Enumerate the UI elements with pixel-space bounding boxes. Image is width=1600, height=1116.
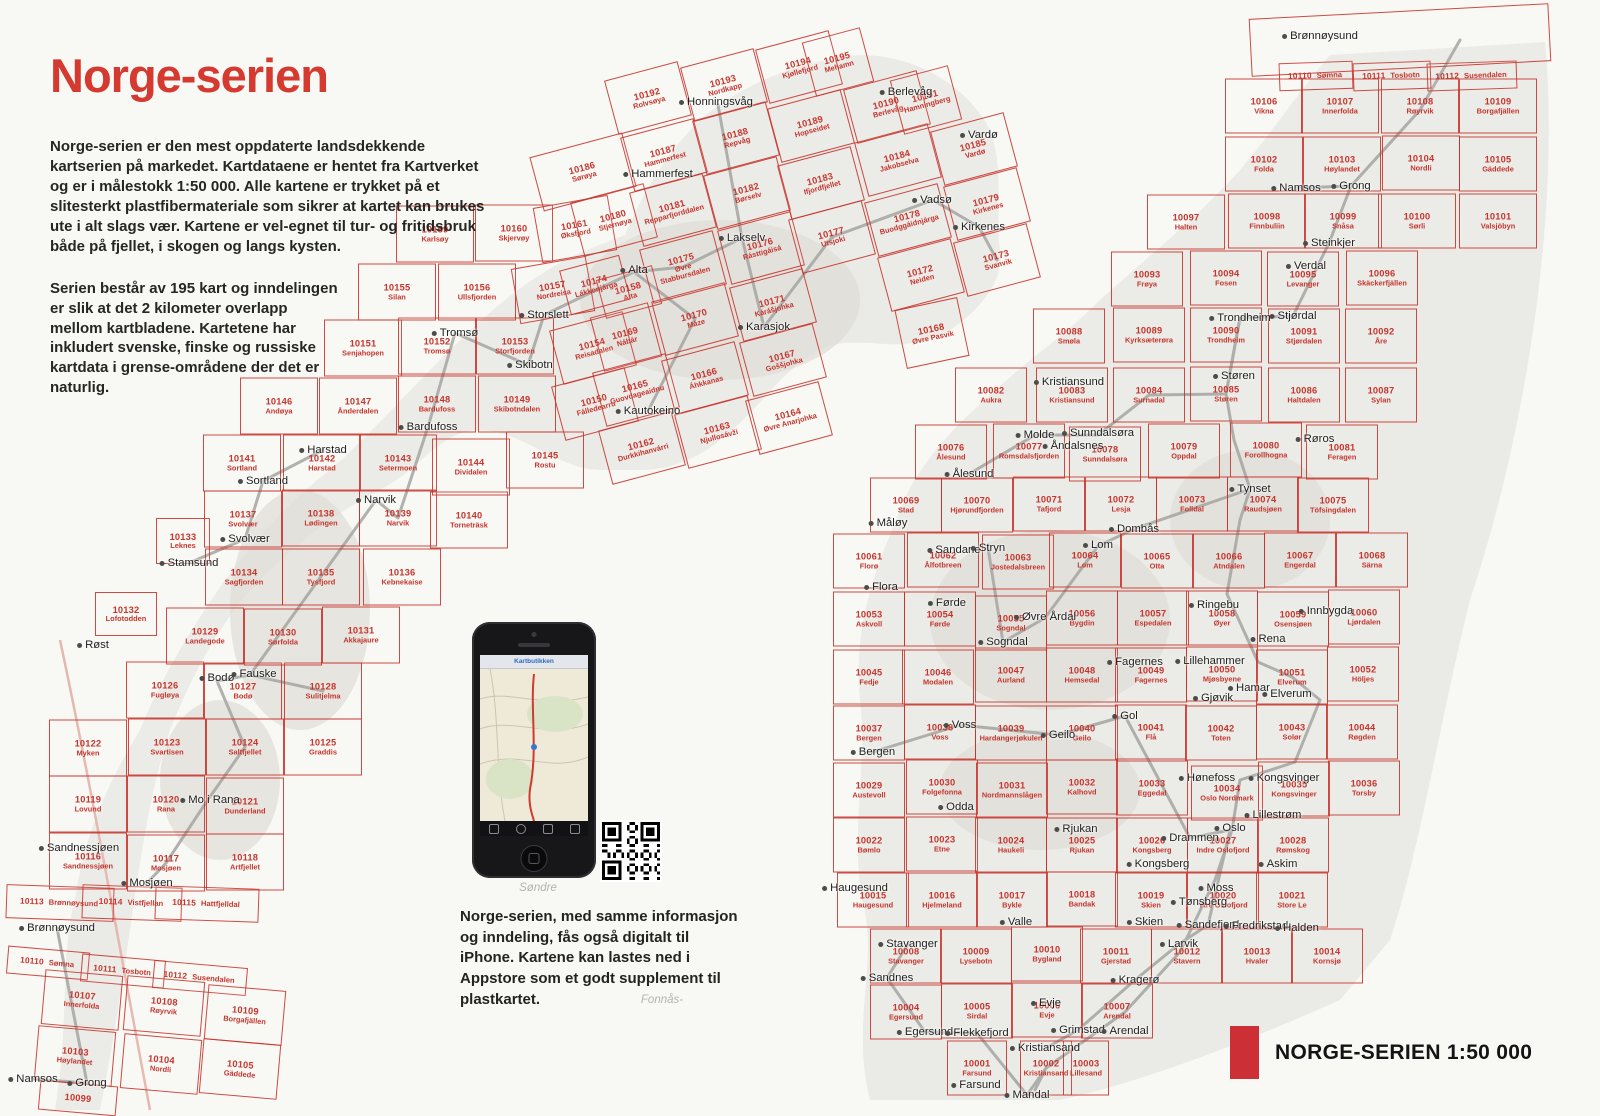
city-name: Kristiansand xyxy=(1018,1042,1080,1054)
city-label-gj-vik: Gjøvik xyxy=(1193,692,1233,704)
sheet-number: 10065 xyxy=(1144,552,1171,562)
city-dot-icon xyxy=(1262,692,1267,697)
sheet-number: 10004 xyxy=(893,1003,920,1013)
phone-screen: Kartbutikken xyxy=(480,655,588,836)
qr-module xyxy=(643,844,646,847)
city-name: Kongsberg xyxy=(1135,858,1190,870)
qr-module xyxy=(613,855,616,858)
city-label-stamsund: Stamsund xyxy=(160,557,219,569)
intro-section: Norge-serien Norge-serien er den mest op… xyxy=(50,48,488,420)
city-label-skibotn: Skibotn xyxy=(507,359,553,371)
city-label-larvik: Larvik xyxy=(1160,938,1198,950)
city-label-kirkenes: Kirkenes xyxy=(953,221,1005,233)
city-label-namsos: Namsos xyxy=(1271,182,1320,194)
map-sheet-10143: 10143Setermoen xyxy=(359,435,437,492)
city-name: Åndalsnes xyxy=(1051,440,1104,452)
qr-module xyxy=(632,844,635,847)
city-dot-icon xyxy=(679,100,684,105)
sheet-name: Surnadal xyxy=(1131,396,1167,404)
sheet-name: Gäddede xyxy=(1480,165,1516,173)
city-label-innbygda: Innbygda xyxy=(1299,605,1353,617)
city-label-sandnes: Sandnes xyxy=(861,972,914,984)
city-dot-icon xyxy=(945,472,950,477)
sheet-name: Borgafjällen xyxy=(221,1014,268,1026)
sheet-name: Voss xyxy=(929,733,950,741)
sheet-name: Hattfjelldal xyxy=(199,899,242,909)
sheet-name: Rømskog xyxy=(1274,846,1312,854)
sheet-number: 10069 xyxy=(893,496,920,506)
city-label-lom: Lom xyxy=(1083,539,1113,551)
qr-module xyxy=(643,863,646,866)
map-sheet-10080: 10080Forollhogna xyxy=(1230,423,1302,478)
sheet-name: Levanger xyxy=(1285,280,1322,288)
qr-module xyxy=(619,844,622,847)
sheet-name: Snåsa xyxy=(1330,222,1356,230)
qr-module xyxy=(646,872,649,875)
city-dot-icon xyxy=(8,1077,13,1082)
sheet-name: Rostu xyxy=(533,461,558,469)
qr-module xyxy=(630,872,633,875)
city-dot-icon xyxy=(1229,487,1234,492)
qr-module xyxy=(602,850,605,853)
page-title: Norge-serien xyxy=(50,48,488,103)
sheet-number: 10037 xyxy=(856,724,883,734)
city-dot-icon xyxy=(19,926,24,931)
city-name: Geilo xyxy=(1049,729,1075,741)
sheet-name: Ålesund xyxy=(934,453,967,461)
sheet-name: Leknes xyxy=(168,542,197,550)
sheet-name: Borgafjällen xyxy=(1475,107,1522,115)
city-name: Støren xyxy=(1221,370,1255,382)
city-dot-icon xyxy=(971,546,976,551)
city-dot-icon xyxy=(507,363,512,368)
city-dot-icon xyxy=(399,425,404,430)
sheet-name: Mosjøen xyxy=(149,864,183,872)
map-sheet-10062: 10062Ålfotbreen xyxy=(907,533,979,588)
qr-module xyxy=(641,852,644,855)
sheet-name: Indre Oslofjord xyxy=(1195,846,1252,854)
sheet-name: Aurland xyxy=(995,676,1027,684)
sheet-name: Torneträsk xyxy=(448,521,490,529)
sheet-name: Modalen xyxy=(921,678,955,686)
sheet-number: 10052 xyxy=(1350,665,1377,675)
sheet-number: 10139 xyxy=(385,509,412,519)
sheet-name: Finnbuliin xyxy=(1247,222,1286,230)
map-sheet-10042: 10042Toten xyxy=(1185,706,1257,761)
sheet-name: Støren xyxy=(1212,395,1239,403)
sheet-name: Bykle xyxy=(1000,901,1024,909)
sheet-name: Myken xyxy=(74,749,101,757)
sheet-name: Atndalen xyxy=(1211,562,1247,570)
sheet-name: Stad xyxy=(896,506,916,514)
city-name: Dombås xyxy=(1117,523,1159,535)
sheet-number: 10101 xyxy=(1485,212,1512,222)
city-name: Sandnes xyxy=(869,972,914,984)
qr-module xyxy=(641,866,644,869)
sheet-number: 10075 xyxy=(1320,496,1347,506)
sheet-name: Fosen xyxy=(1213,279,1239,287)
city-name: Farsund xyxy=(959,1079,1000,1091)
qr-module xyxy=(635,869,638,872)
iphone-note: Norge-serien, med samme informasjon og i… xyxy=(460,907,740,1010)
city-name: Grong xyxy=(1339,180,1370,192)
map-sheet-10086: 10086Haltdalen xyxy=(1268,368,1340,423)
sheet-number: 10130 xyxy=(270,628,297,638)
city-label-t-nsberg: Tønsberg xyxy=(1171,896,1227,908)
city-label-bardufoss: Bardufoss xyxy=(399,421,458,433)
city-dot-icon xyxy=(620,268,625,273)
city-dot-icon xyxy=(1286,264,1291,269)
sheet-name: Sortland xyxy=(225,464,259,472)
city-name: Hønefoss xyxy=(1187,772,1235,784)
sheet-number: 10112 xyxy=(1435,72,1459,82)
sheet-name: Skien xyxy=(1139,901,1163,909)
sheet-name: Stavern xyxy=(1171,957,1202,965)
sheet-number: 10003 xyxy=(1073,1059,1100,1069)
city-dot-icon xyxy=(1127,920,1132,925)
map-sheet-10009: 10009Lysebotn xyxy=(940,929,1012,984)
qr-module xyxy=(608,828,616,836)
sheet-name: Evje xyxy=(1037,1011,1056,1019)
city-name: Sunndalsøra xyxy=(1070,427,1134,439)
sheet-number: 10119 xyxy=(75,795,101,805)
qr-module xyxy=(627,852,630,855)
map-sheet-10010: 10010Bygland xyxy=(1011,927,1083,982)
city-dot-icon xyxy=(938,805,943,810)
map-sheet-10126: 10126Fugløya xyxy=(126,662,204,719)
city-name: Kragerø xyxy=(1119,974,1160,986)
sheet-name: Lysebotn xyxy=(958,957,995,965)
city-name: Halden xyxy=(1283,922,1319,934)
qr-module xyxy=(643,872,646,875)
qr-module xyxy=(635,841,638,844)
city-dot-icon xyxy=(1179,776,1184,781)
sheet-number: 10118 xyxy=(232,853,258,863)
qr-module xyxy=(632,836,635,839)
city-name: Evje xyxy=(1039,997,1061,1009)
sheet-number: 10108 xyxy=(1407,97,1434,107)
sheet-name: Jostedalsbreen xyxy=(989,563,1047,571)
map-sheet-10033: 10033Eggedal xyxy=(1116,761,1188,816)
sheet-number: 10029 xyxy=(856,781,883,791)
qr-module xyxy=(621,855,624,858)
map-sheet-10016: 10016Hjelmeland xyxy=(906,873,978,928)
city-label-gol: Gol xyxy=(1112,710,1138,722)
city-dot-icon xyxy=(199,676,204,681)
sheet-number: 10002 xyxy=(1033,1059,1060,1069)
city-label-st-ren: Støren xyxy=(1213,370,1255,382)
map-sheet-10123: 10123Svartisen xyxy=(128,719,206,776)
sheet-name: Halten xyxy=(1173,223,1200,231)
phone-search-icon xyxy=(543,824,553,834)
sheet-number: 10099 xyxy=(1330,212,1357,222)
map-sheet-10145: 10145Rostu xyxy=(506,432,584,489)
sheet-name: Sogndal xyxy=(994,624,1027,632)
map-sheet-10071: 10071Tafjord xyxy=(1013,477,1085,532)
sheet-number: 10128 xyxy=(310,682,337,692)
city-dot-icon xyxy=(869,521,874,526)
city-label-m-l-y: Måløy xyxy=(869,517,908,529)
sheet-number: 10141 xyxy=(229,454,256,464)
sheet-name: Innerfolda xyxy=(1320,107,1360,115)
city-dot-icon xyxy=(1282,34,1287,39)
city-name: Flora xyxy=(872,581,898,593)
qr-code xyxy=(600,820,662,882)
city-dot-icon xyxy=(1193,696,1198,701)
sheet-name: Svartisen xyxy=(148,748,185,756)
city-label-alta: Alta xyxy=(620,264,647,276)
sheet-number: 10122 xyxy=(75,739,102,749)
sheet-number: 10034 xyxy=(1214,784,1241,794)
sheet-number: 10047 xyxy=(998,666,1025,676)
sheet-number: 10149 xyxy=(504,395,531,405)
city-label-sandnessj-en: Sandnessjøen xyxy=(39,842,119,854)
sheet-name: Romsdalsfjorden xyxy=(997,452,1061,460)
city-name: Verdal xyxy=(1294,260,1326,272)
city-dot-icon xyxy=(1016,433,1021,438)
sheet-name: Osensjøen xyxy=(1272,620,1314,628)
sheet-name: Ljørdalen xyxy=(1345,618,1382,626)
city-label-grong: Grong xyxy=(67,1077,106,1089)
sheet-name: Töfsingdalen xyxy=(1308,506,1358,514)
city-name: Stavanger xyxy=(886,938,938,950)
sheet-number: 10123 xyxy=(154,738,181,748)
sheet-number: 10023 xyxy=(929,835,956,845)
qr-module xyxy=(630,836,633,839)
city-name: Ringebu xyxy=(1197,599,1239,611)
city-label-flora: Flora xyxy=(864,581,898,593)
city-label-sogndal: Sogndal xyxy=(978,636,1027,648)
qr-module xyxy=(646,828,654,836)
city-dot-icon xyxy=(1224,924,1229,929)
city-dot-icon xyxy=(1175,659,1180,664)
sheet-number: 10073 xyxy=(1179,495,1206,505)
city-name: Bardufoss xyxy=(407,421,458,433)
city-name: Namsos xyxy=(16,1073,57,1085)
city-name: Namsos xyxy=(1279,182,1320,194)
qr-module xyxy=(657,877,660,880)
city-dot-icon xyxy=(945,1031,950,1036)
sheet-name: Sørfolda xyxy=(266,638,300,646)
sheet-number: 10041 xyxy=(1138,723,1165,733)
city-name: Mandal xyxy=(1012,1089,1049,1101)
city-name: Arendal xyxy=(1110,1025,1149,1037)
city-label-fauske: Fauske xyxy=(231,668,276,680)
city-dot-icon xyxy=(1199,886,1204,891)
city-name: Lom xyxy=(1091,539,1113,551)
city-dot-icon xyxy=(927,548,932,553)
sheet-number: 10045 xyxy=(856,668,883,678)
city-dot-icon xyxy=(719,236,724,241)
qr-module xyxy=(627,841,630,844)
sheet-name: Höljes xyxy=(1350,675,1376,683)
map-sheet-10032: 10032Kalhovd xyxy=(1046,760,1118,815)
city-dot-icon xyxy=(928,601,933,606)
city-label-geilo: Geilo xyxy=(1041,729,1075,741)
city-label-bergen: Bergen xyxy=(851,746,895,758)
city-dot-icon xyxy=(880,90,885,95)
sheet-name: Øvre Pasvik xyxy=(910,329,957,347)
city-label-mosj-en: Mosjøen xyxy=(121,877,172,889)
city-label-honningsv-g: Honningsvåg xyxy=(679,96,753,108)
sheet-name: Nordmannslågen xyxy=(980,791,1044,799)
city-label-verdal: Verdal xyxy=(1286,260,1326,272)
city-dot-icon xyxy=(231,672,236,677)
city-label-rjukan: Rjukan xyxy=(1054,823,1097,835)
map-sheet-10067: 10067Engerdal xyxy=(1264,533,1336,588)
qr-module xyxy=(630,822,633,825)
sheet-number: 10094 xyxy=(1213,269,1240,279)
city-dot-icon xyxy=(180,798,185,803)
sheet-name: Storfjorden xyxy=(493,347,537,355)
qr-module xyxy=(608,855,611,858)
sheet-name: Akkajaure xyxy=(341,636,380,644)
city-dot-icon xyxy=(1296,437,1301,442)
qr-module xyxy=(657,863,660,866)
sheet-number: 10105 xyxy=(1485,155,1512,165)
sheet-number: 10114 xyxy=(99,897,123,907)
sheet-number: 10076 xyxy=(938,443,965,453)
map-sheet-10073: 10073Folldal xyxy=(1156,477,1228,532)
sheet-name: Engerdal xyxy=(1282,561,1318,569)
city-label-namsos: Namsos xyxy=(8,1073,57,1085)
city-label-stavanger: Stavanger xyxy=(878,938,938,950)
sheet-number: 10025 xyxy=(1069,836,1096,846)
city-label-svolv-r: Svolvær xyxy=(220,533,269,545)
sheet-name: Haukeli xyxy=(996,846,1026,854)
city-name: Voss xyxy=(952,719,977,731)
map-sheet-10108: 10108Røyrvik xyxy=(123,975,205,1037)
map-sheet-10023: 10023Etne xyxy=(906,817,978,872)
sheet-number: 10063 xyxy=(1005,553,1032,563)
qr-module xyxy=(627,866,630,869)
sheet-number: 10067 xyxy=(1287,551,1314,561)
qr-module xyxy=(646,863,649,866)
sheet-name: Sørli xyxy=(1407,222,1427,230)
qr-module xyxy=(649,852,652,855)
sheet-number: 10021 xyxy=(1279,891,1306,901)
map-sheet-10039: 10039Hardangerjøkulen xyxy=(975,706,1047,761)
sheet-name: Ålfotbreen xyxy=(923,561,964,569)
city-name: Brønnøysund xyxy=(1290,30,1358,42)
sheet-name: Sirdal xyxy=(965,1012,990,1020)
city-label-trondheim: Trondheim xyxy=(1209,312,1271,324)
sheet-number: 10061 xyxy=(856,552,883,562)
city-name: Innbygda xyxy=(1307,605,1353,617)
sheet-number: 10137 xyxy=(230,510,257,520)
sheet-number: 10088 xyxy=(1056,327,1083,337)
sheet-name: Kyrksæterøra xyxy=(1123,336,1175,344)
qr-module xyxy=(605,844,608,847)
sheet-name: Lofotodden xyxy=(104,615,149,623)
sheet-name: Lovund xyxy=(73,805,104,813)
sheet-name: Kornsjø xyxy=(1311,957,1343,965)
city-name: Sortland xyxy=(246,475,288,487)
sheet-name: Sømna xyxy=(46,959,76,970)
sheet-name: Solør xyxy=(1281,733,1304,741)
sheet-number: 10126 xyxy=(152,681,179,691)
geo-label: Søndre xyxy=(519,882,557,894)
city-dot-icon xyxy=(519,313,524,318)
map-sheet-10124: 10124Saltfjellet xyxy=(206,719,284,776)
sheet-name: Aukra xyxy=(979,396,1004,404)
sheet-name: Austevoll xyxy=(850,791,887,799)
sheet-number: 10087 xyxy=(1368,386,1395,396)
phone-map-screenshot xyxy=(480,669,588,821)
qr-module xyxy=(635,852,638,855)
sheet-number: 10001 xyxy=(964,1059,991,1069)
sheet-name: Sagfjorden xyxy=(223,578,266,586)
map-sheet-10075: 10075Töfsingdalen xyxy=(1297,478,1369,533)
map-sheet-10105: 10105Gäddede xyxy=(1459,137,1537,192)
city-dot-icon xyxy=(861,976,866,981)
map-sheet-10038: 10038Voss xyxy=(904,705,976,760)
map-sheet-10018: 10018Bandak xyxy=(1046,872,1118,927)
map-sheet-10014: 10014Kornsjø xyxy=(1291,929,1363,984)
city-name: Tynset xyxy=(1237,483,1270,495)
sheet-name: Stavanger xyxy=(886,957,926,965)
sheet-number: 10120 xyxy=(153,795,180,805)
map-sheet-10144: 10144Dividalen xyxy=(432,439,510,496)
sheet-name: Flå xyxy=(1144,733,1159,741)
city-dot-icon xyxy=(953,225,958,230)
map-sheet-10092: 10092Åre xyxy=(1345,309,1417,364)
sheet-name: Otta xyxy=(1148,562,1167,570)
city-dot-icon xyxy=(160,561,165,566)
city-dot-icon xyxy=(1214,826,1219,831)
city-label--vre-rdal: Øvre Årdal xyxy=(1014,611,1076,623)
sheet-number: 10084 xyxy=(1136,386,1163,396)
city-name: Skibotn xyxy=(515,359,553,371)
qr-module xyxy=(630,844,633,847)
sheet-number: 10016 xyxy=(929,891,956,901)
sheet-name: Harstad xyxy=(306,464,338,472)
city-name: Harstad xyxy=(307,444,347,456)
city-name: Tønsberg xyxy=(1179,896,1227,908)
sheet-name: Elverum xyxy=(1275,678,1308,686)
city-dot-icon xyxy=(1031,1001,1036,1006)
city-label-vads-: Vadsø xyxy=(912,194,952,206)
sheet-name: Raudsjøen xyxy=(1242,505,1284,513)
city-name: Ålesund xyxy=(953,468,994,480)
city-label-narvik: Narvik xyxy=(356,494,396,506)
sheet-name: Särna xyxy=(1360,561,1385,569)
qr-module xyxy=(632,877,635,880)
sheet-name: Egersund xyxy=(887,1013,925,1021)
sheet-number: 10104 xyxy=(1408,154,1435,164)
city-name: Lakselv xyxy=(727,232,765,244)
map-sheet-10082: 10082Aukra xyxy=(955,368,1027,423)
city-name: Askim xyxy=(1267,858,1298,870)
qr-module xyxy=(635,866,638,869)
sheet-name: Høylandet xyxy=(54,1055,94,1067)
city-name: Alta xyxy=(628,264,647,276)
city-label-r-ros: Røros xyxy=(1296,433,1335,445)
map-sheet-10024: 10024Haukeli xyxy=(975,818,1047,873)
sheet-name: Lødingen xyxy=(302,519,339,527)
sheet-number: 10013 xyxy=(1244,947,1271,957)
sheet-name: Stjørdalen xyxy=(1284,337,1324,345)
sheet-number: 10125 xyxy=(310,738,337,748)
city-label-lillestr-m: Lillestrøm xyxy=(1245,809,1302,821)
phone-speaker xyxy=(518,643,550,647)
phone-menu-icon xyxy=(570,824,580,834)
qr-module xyxy=(602,844,605,847)
map-sheet-10100: 10100Sørli xyxy=(1378,194,1456,249)
city-label-berlev-g: Berlevåg xyxy=(880,86,933,98)
city-dot-icon xyxy=(1000,920,1005,925)
city-label-evje: Evje xyxy=(1031,997,1061,1009)
